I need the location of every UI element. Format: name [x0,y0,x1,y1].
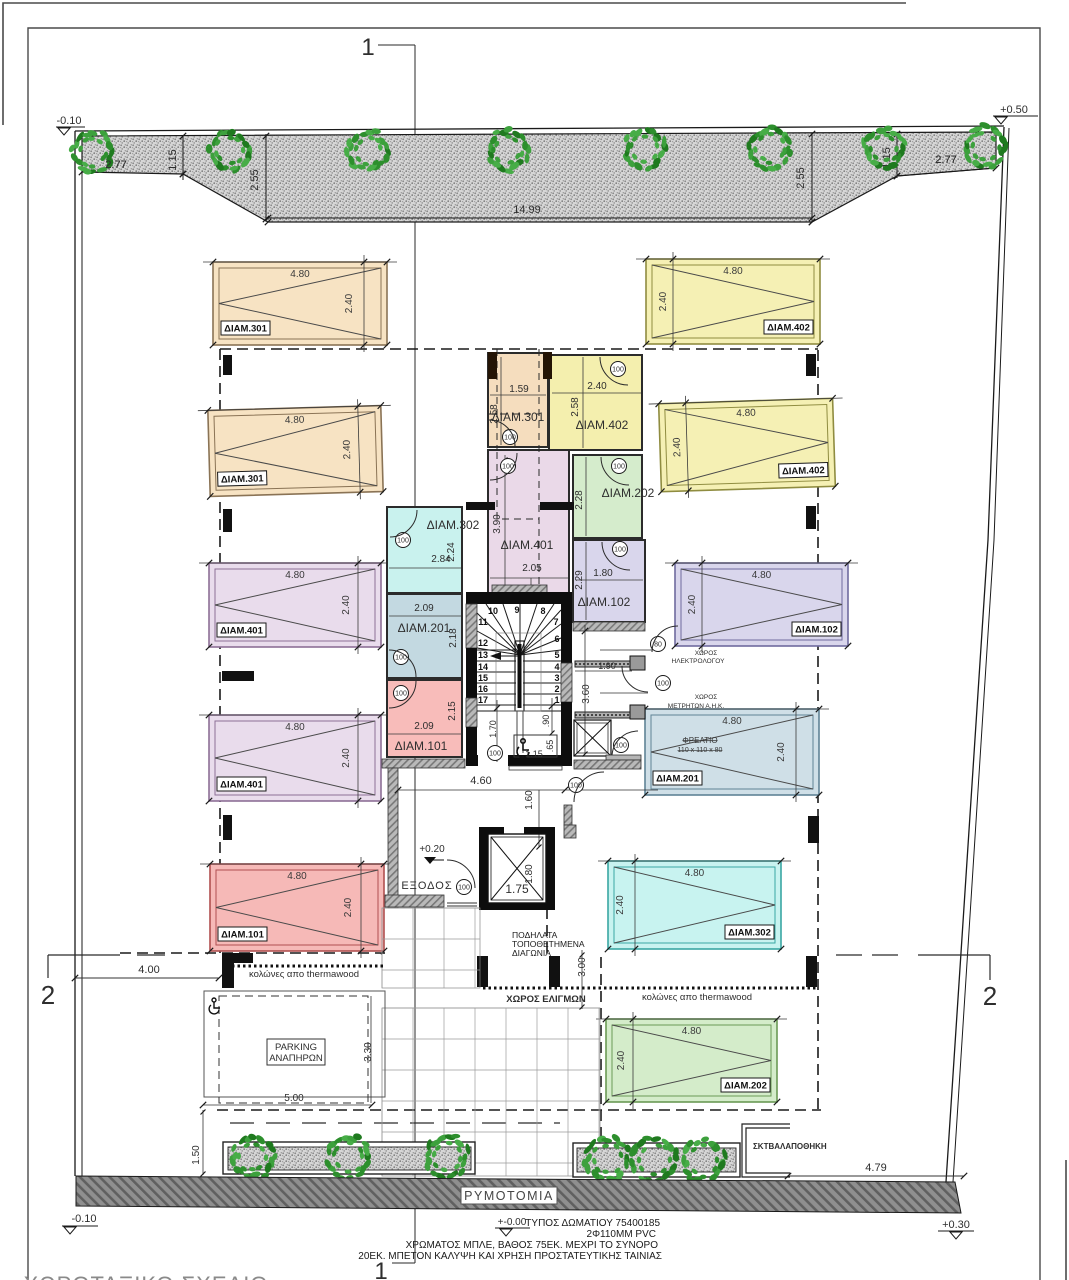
svg-text:6: 6 [554,634,559,644]
svg-text:14.99: 14.99 [513,204,541,216]
svg-text:100: 100 [502,463,514,470]
svg-text:ΔIAM.402: ΔIAM.402 [782,465,825,477]
svg-text:κολώνες απο thermawood: κολώνες απο thermawood [249,969,359,980]
svg-text:2.40: 2.40 [776,742,787,762]
svg-text:1.15: 1.15 [167,149,179,170]
svg-text:ΜΕΤΡΗΤΩΝ Α.Η.Κ.: ΜΕΤΡΗΤΩΝ Α.Η.Κ. [668,703,725,710]
svg-text:ΔIAM.101: ΔIAM.101 [395,739,448,753]
svg-text:ΔIAM.102: ΔIAM.102 [578,595,631,609]
svg-text:-0.10: -0.10 [56,115,81,127]
svg-text:13: 13 [478,650,488,660]
svg-text:4.00: 4.00 [138,964,159,976]
svg-text:2.40: 2.40 [342,439,354,459]
svg-text:ΦPEATIO: ΦPEATIO [682,736,717,745]
svg-text:κολώνες απο thermawood: κολώνες απο thermawood [642,992,752,1003]
svg-text:100: 100 [397,537,409,544]
svg-text:ΑΝΑΠΗΡΩΝ: ΑΝΑΠΗΡΩΝ [269,1053,323,1064]
svg-text:2: 2 [41,980,55,1010]
svg-text:ΔIAM.401: ΔIAM.401 [220,780,263,791]
svg-text:100: 100 [458,884,470,891]
svg-text:EΞΟΔΟΣ: EΞΟΔΟΣ [401,880,452,892]
svg-text:16: 16 [478,684,488,694]
svg-text:3.00: 3.00 [577,957,588,977]
svg-text:2.40: 2.40 [687,594,698,614]
svg-text:9: 9 [514,605,519,615]
svg-text:ΔIAM.401: ΔIAM.401 [220,626,263,637]
svg-text:+-0.00: +-0.00 [498,1217,527,1228]
svg-text:100: 100 [395,690,407,697]
svg-text:4.80: 4.80 [285,415,305,427]
svg-text:ΔIAM.302: ΔIAM.302 [728,928,771,939]
svg-text:100: 100 [613,463,625,470]
svg-text:2.18: 2.18 [448,628,459,648]
svg-text:ΔIAM.302: ΔIAM.302 [427,518,480,532]
svg-text:4.60: 4.60 [470,775,491,787]
svg-text:2.77: 2.77 [935,154,956,166]
svg-text:12: 12 [478,638,488,648]
svg-text:ΣΚΤΒΑΛΑΠΟΘΗΚΗ: ΣΚΤΒΑΛΑΠΟΘΗΚΗ [753,1142,827,1151]
svg-text:7: 7 [553,617,558,627]
svg-text:2.40: 2.40 [615,895,626,915]
svg-text:ΡΥΜΟΤΟΜΙΑ: ΡΥΜΟΤΟΜΙΑ [464,1189,554,1203]
svg-text:4.80: 4.80 [290,269,310,280]
svg-text:ΔIAM.301: ΔIAM.301 [224,324,267,335]
svg-text:3.60: 3.60 [581,684,592,704]
svg-text:ΔIAM.202: ΔIAM.202 [602,486,655,500]
svg-text:1: 1 [361,34,374,61]
svg-text:3.30: 3.30 [363,1042,374,1062]
svg-text:ΧΩΡΟΤΑΞΙΚΟ ΣΧΕΔΙΟ: ΧΩΡΟΤΑΞΙΚΟ ΣΧΕΔΙΟ [24,1272,269,1280]
svg-text:ΤΥΠΟΣ ΔΩΜΑΤΙΟΥ 75400185: ΤΥΠΟΣ ΔΩΜΑΤΙΟΥ 75400185 [525,1218,660,1229]
svg-text:ΧΩΡΟΣ: ΧΩΡΟΣ [695,694,718,701]
svg-text:80: 80 [654,641,662,648]
svg-text:4.80: 4.80 [722,716,742,727]
svg-text:1.80: 1.80 [593,568,613,579]
svg-text:1.59: 1.59 [509,384,529,395]
svg-text:2.40: 2.40 [672,437,684,457]
svg-text:2.09: 2.09 [414,721,434,732]
svg-text:ΔΙΑΓΩΝΙΑ: ΔΙΑΓΩΝΙΑ [512,948,551,958]
svg-text:100: 100 [612,366,624,373]
svg-text:100: 100 [615,742,627,749]
svg-text:4.80: 4.80 [736,408,756,420]
svg-text:2.40: 2.40 [341,595,352,615]
svg-text:2.24: 2.24 [446,542,457,562]
svg-text:100: 100 [614,546,626,553]
svg-text:2: 2 [554,684,559,694]
svg-text:ΗΛΕΚΤΡΟΛΟΓΟΥ: ΗΛΕΚΤΡΟΛΟΓΟΥ [672,658,726,665]
svg-text:110 x 110 x 80: 110 x 110 x 80 [678,747,723,754]
svg-text:4.80: 4.80 [285,722,305,733]
svg-text:2.58: 2.58 [570,397,581,417]
svg-text:ΔIAM.201: ΔIAM.201 [656,774,699,785]
svg-text:2.77: 2.77 [105,159,126,171]
svg-text:4: 4 [554,662,559,672]
svg-text:14: 14 [478,662,488,672]
svg-text:4.80: 4.80 [682,1026,702,1037]
svg-text:ΔIAM.402: ΔIAM.402 [576,418,629,432]
svg-text:ΔIAM.201: ΔIAM.201 [398,621,451,635]
svg-text:2.09: 2.09 [414,603,434,614]
svg-text:ΔIAM.402: ΔIAM.402 [767,323,810,334]
svg-text:2.55: 2.55 [795,167,807,188]
svg-text:-0.10: -0.10 [71,1213,96,1225]
svg-text:1.15: 1.15 [525,749,543,759]
svg-text:PARKING: PARKING [275,1042,317,1053]
svg-text:2.40: 2.40 [587,381,607,392]
svg-text:10: 10 [488,606,498,616]
svg-text:ΔIAM.102: ΔIAM.102 [795,625,838,636]
svg-text:+0.50: +0.50 [1000,104,1028,116]
svg-text:.65: .65 [545,740,555,753]
svg-text:8: 8 [540,606,545,616]
svg-text:4.79: 4.79 [865,1162,886,1174]
svg-text:20ΕΚ. ΜΠΕΤΟΝ ΚΑΛΥΨΗ ΚΑΙ ΧΡΗΣΗ: 20ΕΚ. ΜΠΕΤΟΝ ΚΑΛΥΨΗ ΚΑΙ ΧΡΗΣΗ ΠΡΟΣΤΑΤΕΥΤ… [358,1251,662,1262]
svg-text:4.80: 4.80 [287,871,307,882]
svg-text:2.15: 2.15 [447,701,458,721]
svg-text:2.40: 2.40 [343,897,354,917]
svg-text:17: 17 [478,695,488,705]
svg-text:1.60: 1.60 [524,790,535,810]
svg-text:11: 11 [478,617,488,627]
svg-text:ΔIAM.202: ΔIAM.202 [724,1081,767,1092]
svg-text:2.40: 2.40 [616,1050,627,1070]
svg-text:1.90: 1.90 [598,661,616,671]
svg-text:4.80: 4.80 [723,266,743,277]
svg-text:ΔIAM.101: ΔIAM.101 [221,930,264,941]
svg-text:2.40: 2.40 [344,293,355,313]
svg-text:1.70: 1.70 [488,720,498,738]
svg-text:100: 100 [489,750,501,757]
svg-text:4.80: 4.80 [285,570,305,581]
svg-text:3: 3 [554,673,559,683]
svg-text:ΧΩΡΟΣ: ΧΩΡΟΣ [695,650,718,657]
svg-text:2.40: 2.40 [341,748,352,768]
svg-text:1.80: 1.80 [524,864,535,884]
svg-text:4.80: 4.80 [752,570,772,581]
svg-text:ΧΡΩΜΑΤΟΣ ΜΠΛΕ, ΒΑΘΟΣ 75ΕΚ. ΜΕΧ: ΧΡΩΜΑΤΟΣ ΜΠΛΕ, ΒΑΘΟΣ 75ΕΚ. ΜΕΧΡΙ ΤΟ ΣΥΝΟ… [406,1240,659,1251]
svg-text:+0.30: +0.30 [942,1219,970,1231]
svg-text:4.80: 4.80 [685,868,705,879]
svg-text:5.00: 5.00 [284,1093,304,1104]
svg-text:2: 2 [983,981,997,1011]
svg-text:.90: .90 [541,715,551,728]
svg-text:2.28: 2.28 [574,490,585,510]
svg-text:15: 15 [478,673,488,683]
svg-text:5: 5 [554,650,559,660]
svg-text:ΧΩΡΟΣ ΕΛΙΓΜΩΝ: ΧΩΡΟΣ ΕΛΙΓΜΩΝ [506,994,586,1005]
svg-text:1.50: 1.50 [191,1145,202,1165]
svg-text:+0.20: +0.20 [419,844,445,855]
svg-text:ΔIAM.301: ΔIAM.301 [221,473,265,485]
svg-text:2Φ110ΜΜ PVC: 2Φ110ΜΜ PVC [587,1229,656,1240]
svg-text:100: 100 [657,680,669,687]
svg-text:2.40: 2.40 [658,291,669,311]
svg-text:ΔIAM.401: ΔIAM.401 [501,538,554,552]
svg-text:2.55: 2.55 [249,169,261,190]
